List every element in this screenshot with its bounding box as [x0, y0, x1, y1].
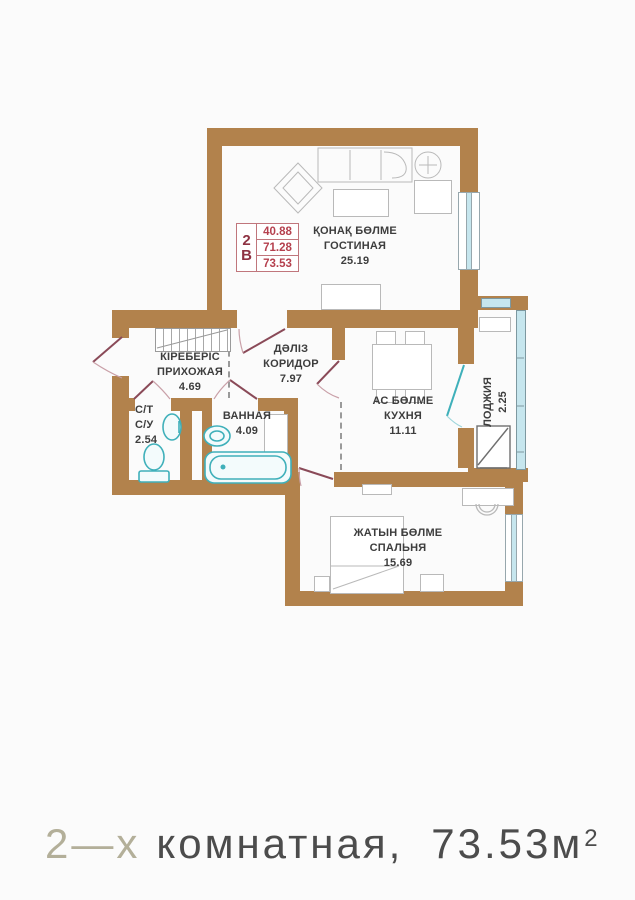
room-area: 4.69 [142, 380, 238, 395]
room-area: 11.11 [355, 424, 451, 439]
room-name-kz: КІРЕБЕРІС [142, 350, 238, 365]
room-label-living: ҚОНАҚ БӨЛМЕ ГОСТИНАЯ 25.19 [305, 224, 405, 269]
room-name-ru: ПРИХОЖАЯ [142, 365, 238, 380]
unit-id: 2 В [237, 224, 256, 271]
unit-areas: 40.88 71.28 73.53 [256, 224, 298, 271]
plan-caption: 2—х комнатная, 73.53м2 [45, 820, 601, 868]
room-name-ru: СПАЛЬНЯ [340, 541, 456, 556]
unit-id-line: 2 [242, 233, 250, 248]
toilet [139, 444, 169, 482]
glazing-ticks [516, 358, 524, 452]
sofa [318, 148, 412, 182]
caption-prefix: 2—х [45, 820, 140, 868]
room-label-loggia: ЛОДЖИЯ 2.25 [481, 347, 513, 457]
unit-area-value: 71.28 [257, 240, 298, 256]
room-label-kitchen: АС БӨЛМЕ КУХНЯ 11.11 [355, 394, 451, 439]
room-name-ru: ЛОДЖИЯ [481, 347, 496, 457]
room-area: 7.97 [249, 372, 333, 387]
room-name-ru: КОРИДОР [249, 357, 333, 372]
room-label-corridor: ДӘЛІЗ КОРИДОР 7.97 [249, 342, 333, 387]
caption-area-unit: м [551, 820, 583, 868]
room-name-ru: КУХНЯ [355, 409, 451, 424]
unit-area-value: 40.88 [257, 224, 298, 240]
room-area: 15.69 [340, 556, 456, 571]
wardrobe-diagonal [157, 330, 227, 348]
room-name-ru: ВАННАЯ [208, 409, 286, 424]
room-name-kz: ЖАТЫН БӨЛМЕ [340, 526, 456, 541]
room-name-kz: ДӘЛІЗ [249, 342, 333, 357]
room-area: 2.54 [135, 433, 177, 448]
room-label-bedroom: ЖАТЫН БӨЛМЕ СПАЛЬНЯ 15.69 [340, 526, 456, 571]
plan-graphics-layer [0, 0, 635, 900]
room-name: С/Т [135, 403, 177, 418]
room-area: 2.25 [496, 347, 511, 457]
caption-text: комнатная, [156, 820, 403, 868]
room-name-kz: АС БӨЛМЕ [355, 394, 451, 409]
floor-plan-page: 2 В 40.88 71.28 73.53 ҚОНАҚ БӨЛМЕ ГОСТИН… [0, 0, 635, 900]
caption-area: 73.53м2 [431, 820, 600, 868]
room-label-wc: С/Т С/У 2.54 [135, 403, 177, 448]
entrance-door [93, 337, 122, 378]
unit-id-line: В [241, 248, 252, 263]
plant-icon [415, 152, 441, 178]
room-name-kz: ҚОНАҚ БӨЛМЕ [305, 224, 405, 239]
unit-area-value: 73.53 [257, 256, 298, 271]
desk-chair [476, 504, 498, 515]
caption-area-value: 73.53 [431, 820, 551, 868]
bathtub [205, 452, 291, 483]
armchair [274, 163, 322, 213]
room-label-bathroom: ВАННАЯ 4.09 [208, 409, 286, 439]
room-name: С/У [135, 418, 177, 433]
caption-area-sup: 2 [584, 825, 600, 853]
room-area: 4.09 [208, 424, 286, 439]
bedroom-door [299, 468, 333, 486]
room-label-hallway: КІРЕБЕРІС ПРИХОЖАЯ 4.69 [142, 350, 238, 395]
room-name-ru: ГОСТИНАЯ [305, 239, 405, 254]
unit-info-box: 2 В 40.88 71.28 73.53 [236, 223, 299, 272]
room-area: 25.19 [305, 254, 405, 269]
